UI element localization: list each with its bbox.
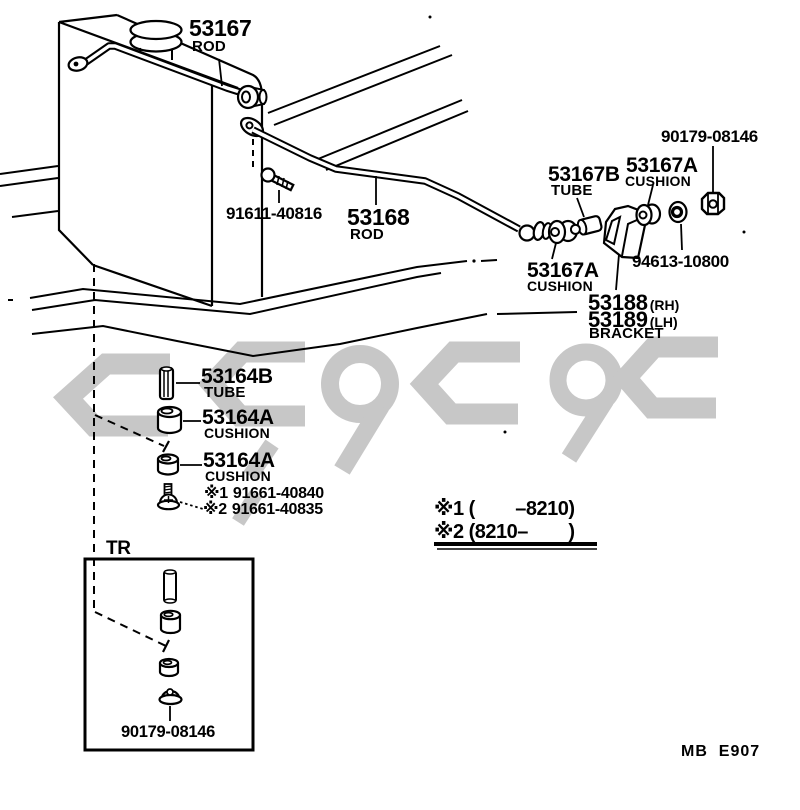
screw-icon <box>158 484 179 509</box>
ref-mark-1: ※1 <box>204 486 228 502</box>
rod-grommet-icon <box>238 86 267 108</box>
cushion-53167a-right-icon <box>637 205 661 226</box>
label-90179-top: 90179-08146 <box>661 128 758 145</box>
label-screw-new-row: ※2 91661-40835 <box>203 502 323 518</box>
diagram-line-art <box>0 0 800 810</box>
cushion-53164a-upper-icon <box>158 407 181 433</box>
tr-cushion-upper-icon <box>161 611 180 633</box>
label-53167-name: ROD <box>192 39 226 54</box>
label-53164a-upper-name: CUSHION <box>204 426 270 440</box>
note-line-2: ※2 (8210– ) <box>434 522 575 542</box>
note-underline <box>434 544 597 549</box>
label-91661-40835: 91661-40835 <box>232 502 323 518</box>
tr-tube-icon <box>164 570 176 603</box>
label-94613: 94613-10800 <box>632 253 729 270</box>
label-53164b-name: TUBE <box>204 385 246 400</box>
parts-diagram-page: 53167 ROD 91611-40816 53168 ROD 53167B T… <box>0 0 800 810</box>
label-90179-inset: 90179-08146 <box>121 724 215 741</box>
tr-nut-icon <box>160 689 182 704</box>
note-line-1: ※1 ( –8210) <box>434 499 575 519</box>
cushion-53164a-lower-icon <box>158 455 178 475</box>
body-panel-lines <box>0 46 577 356</box>
tube-53167b-icon <box>569 215 602 237</box>
label-53164a-lower-name: CUSHION <box>205 469 271 483</box>
rod-end-clip-icon <box>67 55 89 72</box>
nut-icon <box>702 193 724 214</box>
page-code: MB E907 <box>681 744 760 760</box>
label-53167b-name: TUBE <box>551 183 593 198</box>
rod-ball-end-icon <box>520 221 553 241</box>
label-91661-40840: 91661-40840 <box>233 486 324 502</box>
label-53167a-left-name: CUSHION <box>527 279 593 293</box>
label-screw-old-row: ※1 91661-40840 <box>204 486 324 502</box>
label-91611-40816: 91611-40816 <box>226 205 322 222</box>
label-53167-number: 53167 <box>189 17 251 40</box>
label-53167a-right-name: CUSHION <box>625 174 691 188</box>
tube-53164b-icon <box>160 367 173 399</box>
label-tr: TR <box>106 539 131 558</box>
bolt-icon <box>262 169 294 190</box>
label-53168-name: ROD <box>350 227 384 242</box>
tr-cushion-lower-icon <box>160 659 178 676</box>
label-bracket-name: BRACKET <box>589 326 664 341</box>
washer-icon <box>670 202 687 222</box>
ref-mark-2: ※2 <box>203 502 227 518</box>
